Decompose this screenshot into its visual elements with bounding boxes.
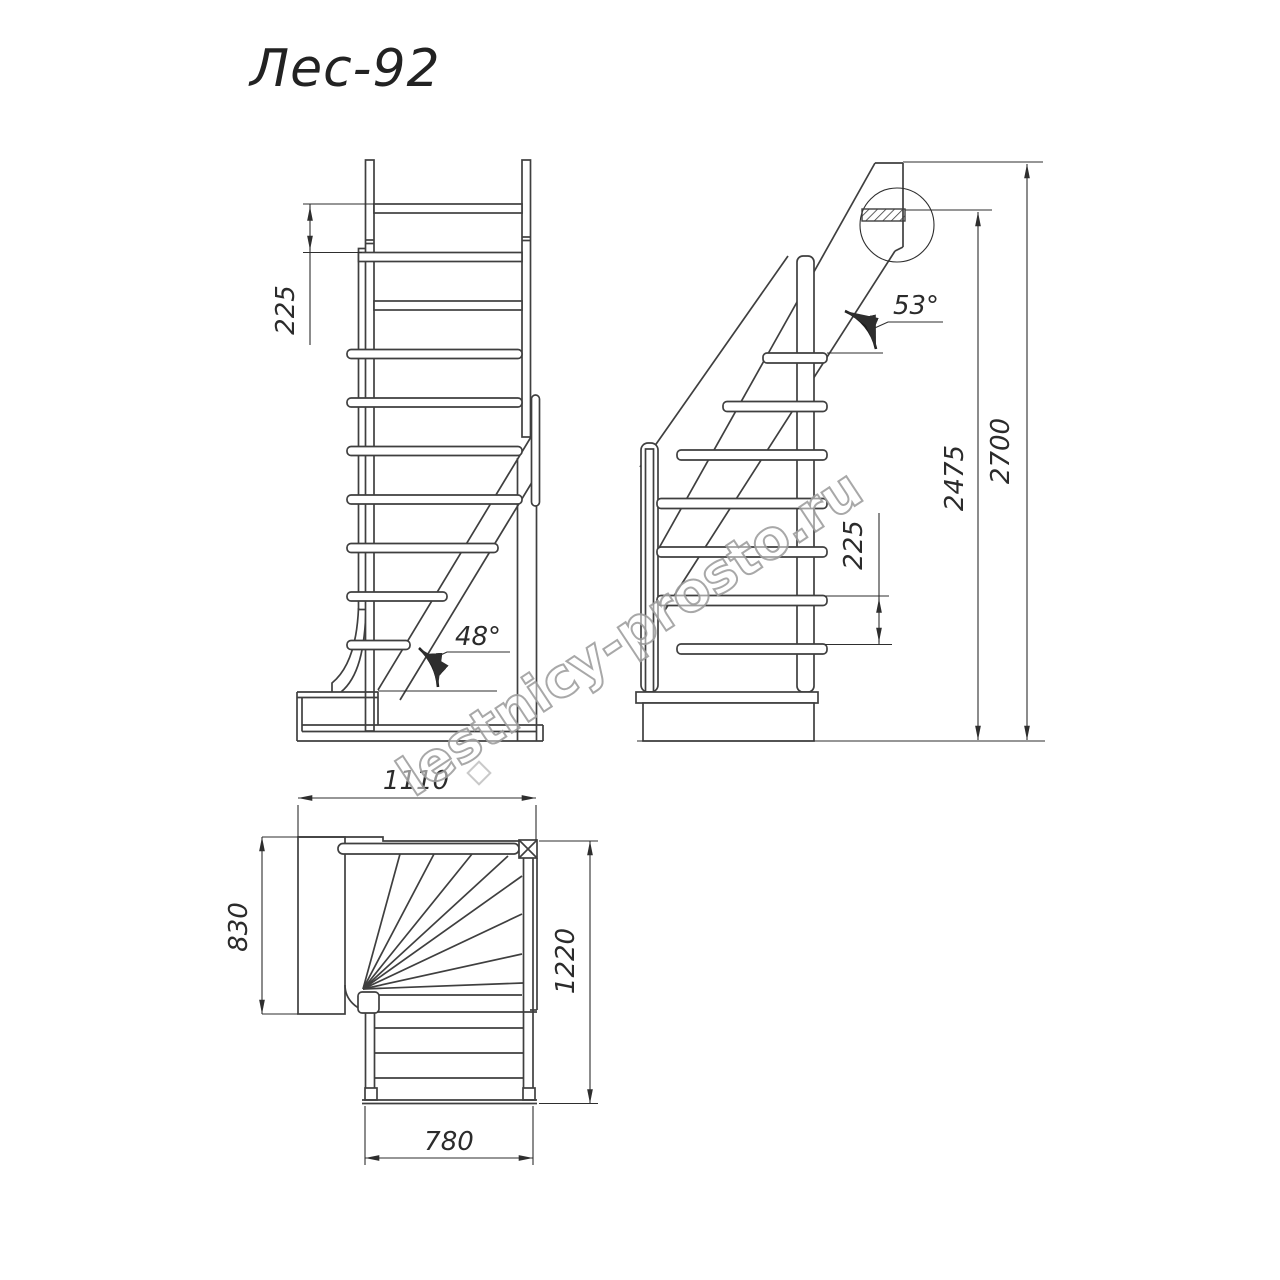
plan-flight-treads (375, 995, 538, 1078)
side-view: 53° 225 2475 2700 (636, 162, 1045, 741)
side-base (636, 692, 1045, 741)
plan-winder-fan (363, 854, 523, 989)
front-step-height-label: 225 (271, 285, 301, 335)
front-stringer (378, 427, 537, 700)
plan-dim-flight-width: 780 (365, 1106, 533, 1165)
front-view: 225 48° (271, 160, 543, 741)
front-angle-label: 48° (455, 622, 501, 652)
plan-dim-landing-depth: 830 (224, 837, 298, 1014)
plan-bottom-post-right (523, 1088, 535, 1100)
plan-handrail (338, 844, 519, 855)
side-floor-hatch (862, 209, 905, 221)
front-newel (332, 249, 366, 693)
side-underside-height-label: 2475 (940, 445, 970, 511)
side-dim-2475: 2475 (905, 210, 992, 740)
stair-drawing: Лес-92 (0, 0, 1280, 1280)
plan-landing-depth-label: 830 (224, 902, 254, 952)
side-angle-label: 53° (893, 291, 939, 321)
plan-corner-post (519, 840, 537, 858)
front-handrail (532, 395, 540, 506)
plan-flight-width-label: 780 (424, 1127, 474, 1157)
drawing-title: Лес-92 (248, 39, 441, 99)
side-total-height-label: 2700 (986, 418, 1016, 484)
plan-dim-total-depth: 1220 (539, 841, 598, 1104)
plan-landing (298, 837, 345, 1014)
side-dim-2700: 2700 (903, 162, 1043, 740)
blueprint-page: Лес-92 (0, 0, 1280, 1280)
plan-newel-post (358, 992, 379, 1013)
plan-bottom-post-left (365, 1088, 377, 1100)
plan-total-depth-label: 1220 (551, 928, 581, 994)
plan-view: 1110 830 1220 780 (224, 766, 598, 1165)
